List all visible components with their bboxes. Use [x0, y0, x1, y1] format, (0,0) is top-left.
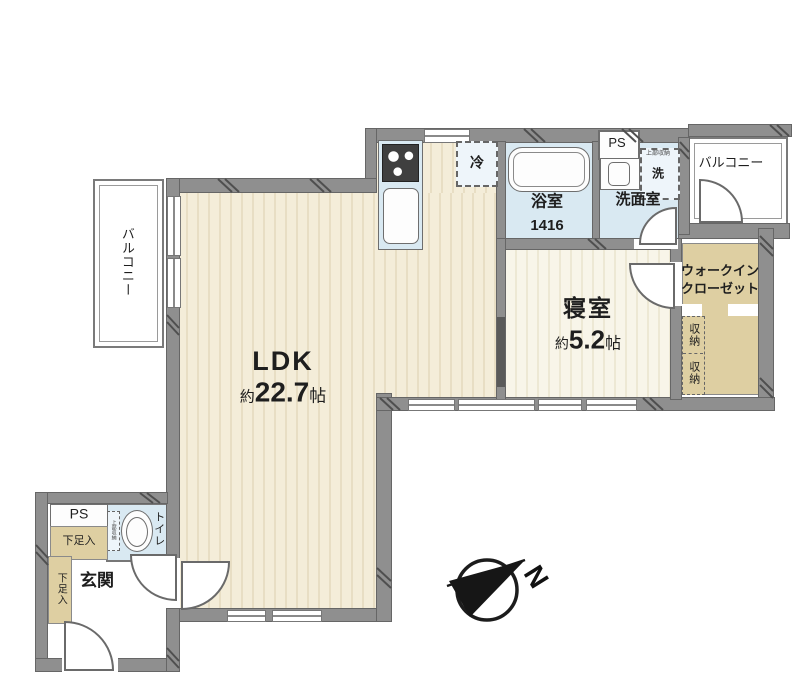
overlay-graphics: N	[0, 0, 800, 688]
compass: N	[447, 560, 555, 620]
floor-plan: 冷 PS 上部収納 洗 上部収納 PS 下足入 下足入 収納 収納 LDK 約2…	[0, 0, 800, 688]
door-washroom	[640, 208, 676, 244]
door-balcony-right	[700, 180, 742, 222]
door-entrance	[65, 622, 113, 670]
door-toilet	[131, 555, 176, 600]
door-genkan-ldk	[182, 562, 229, 609]
compass-north-label: N	[518, 560, 555, 594]
door-wic	[630, 264, 674, 308]
compass-needle	[449, 560, 525, 617]
